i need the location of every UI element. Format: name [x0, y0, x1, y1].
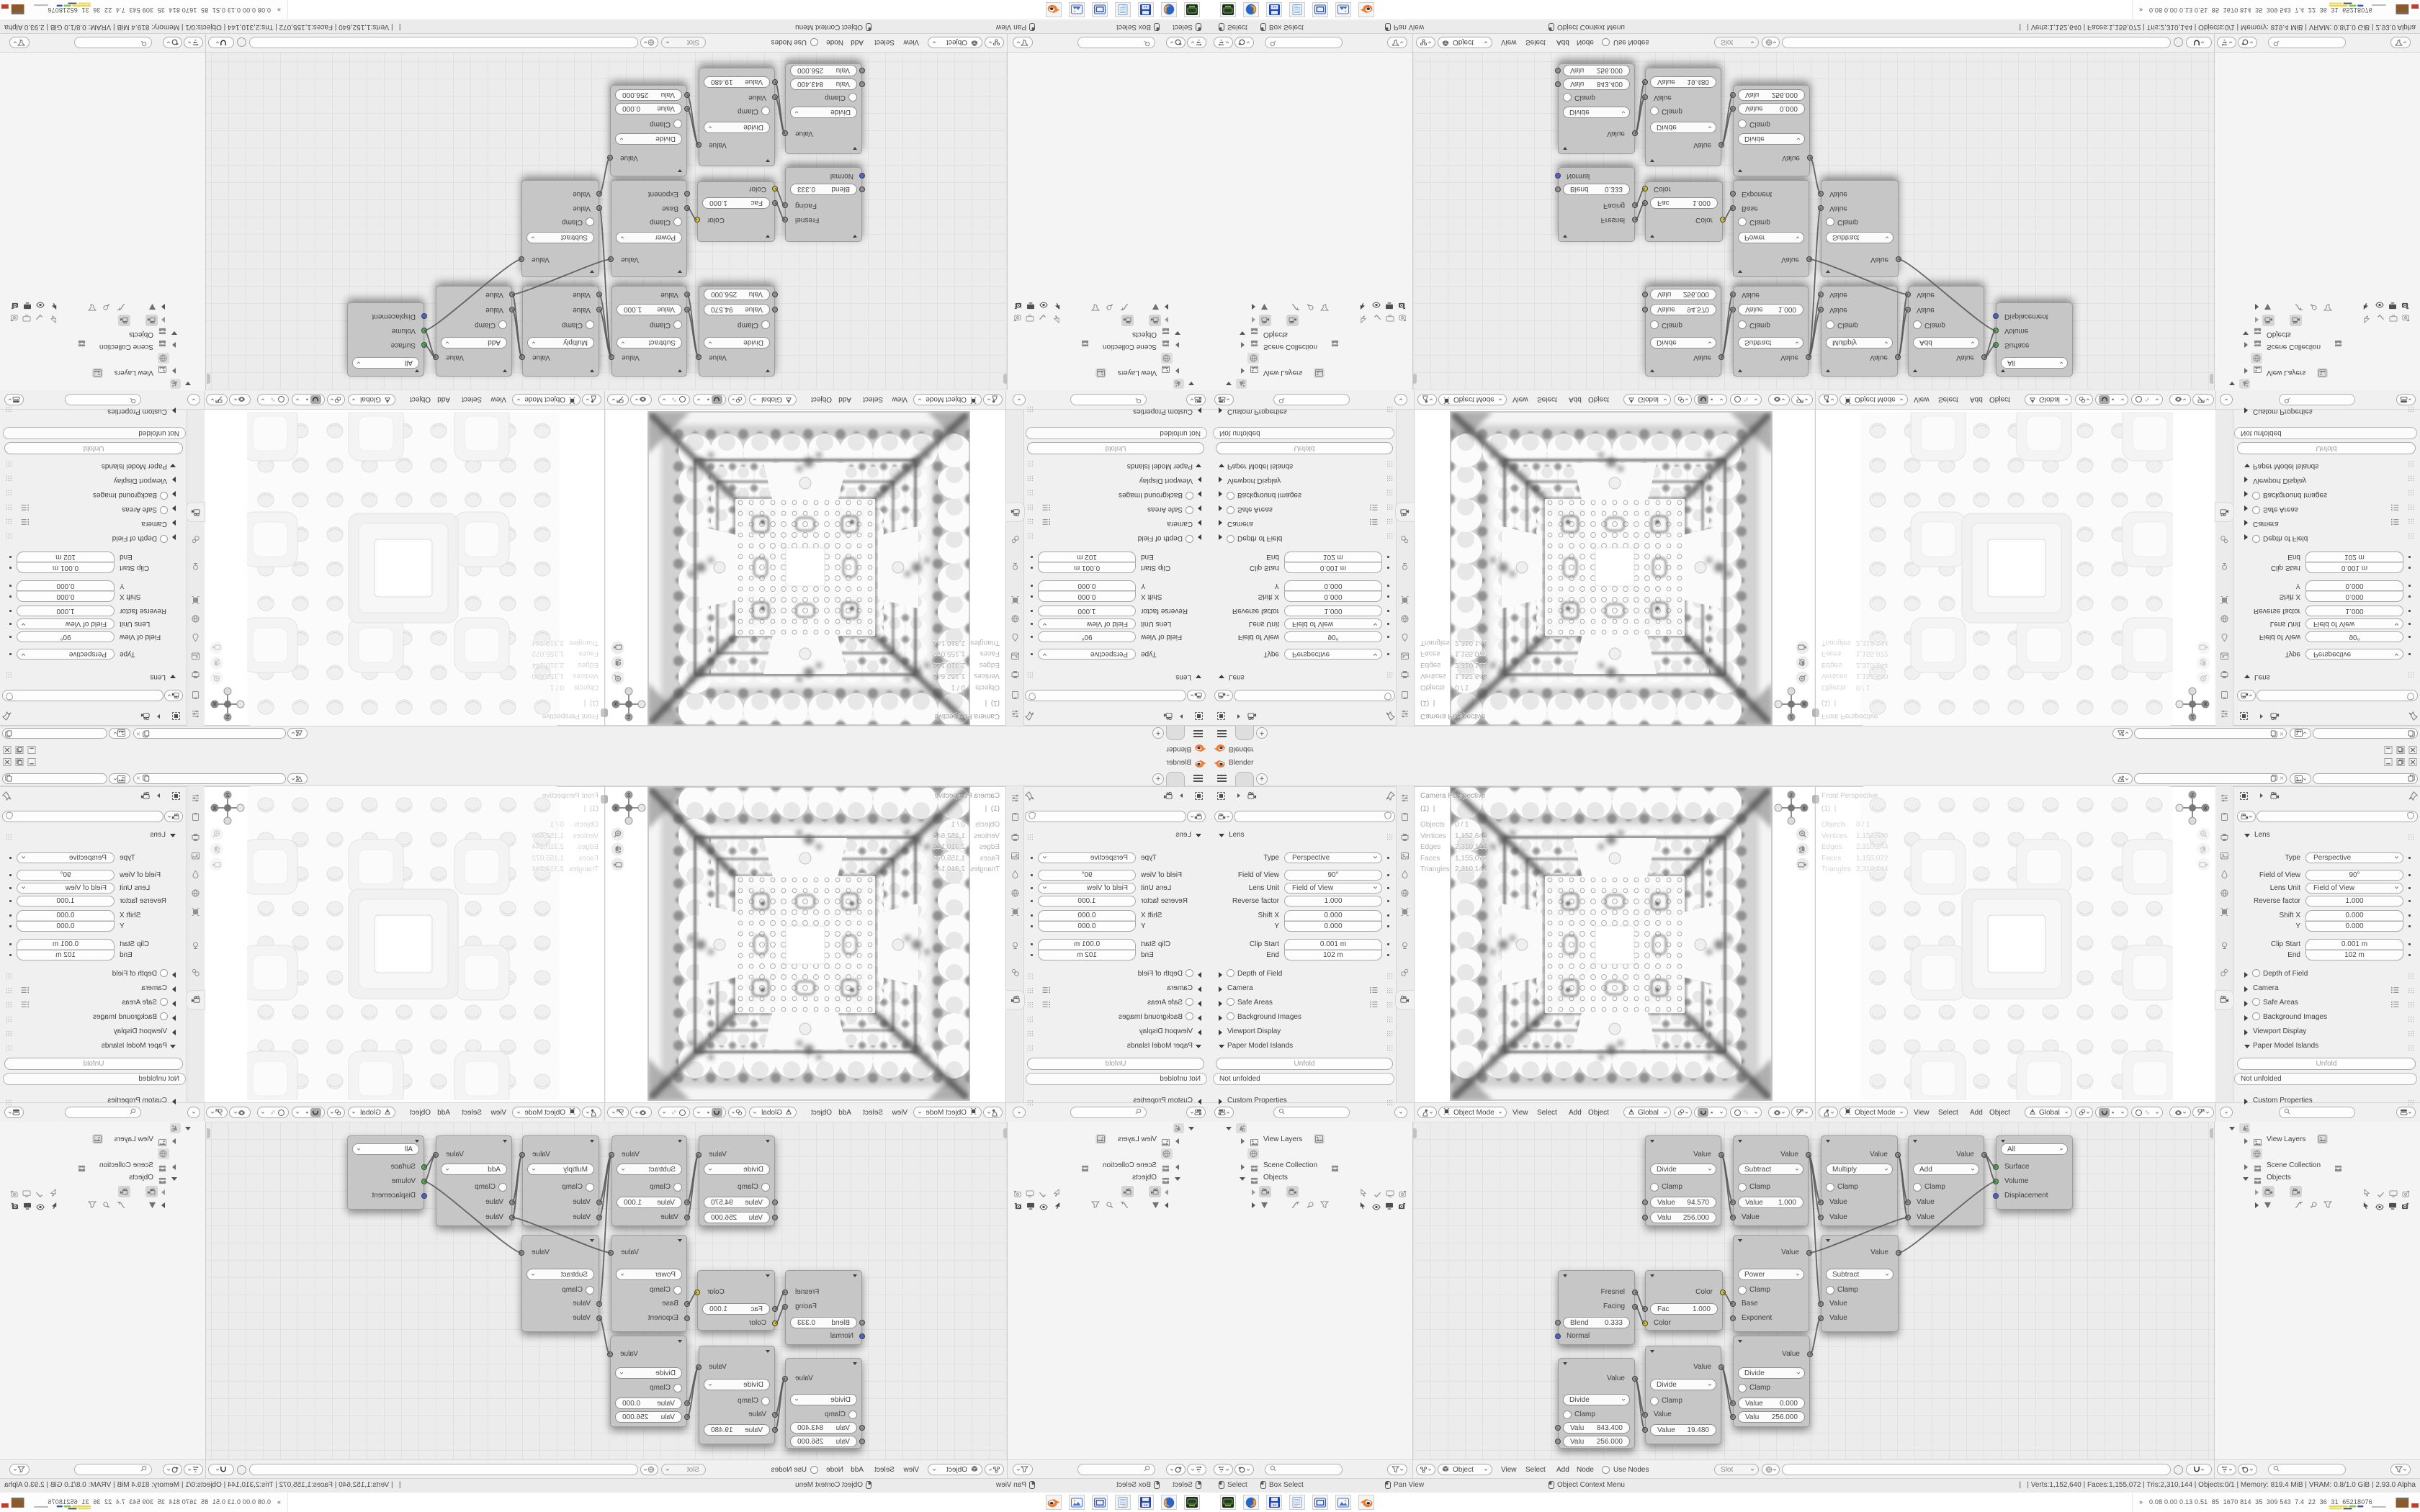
svg-text:64: 64: [1272, 5, 1276, 9]
svg-text:64: 64: [1144, 5, 1148, 9]
svg-text:64: 64: [1272, 1503, 1276, 1507]
svg-text:64: 64: [1144, 1503, 1148, 1507]
